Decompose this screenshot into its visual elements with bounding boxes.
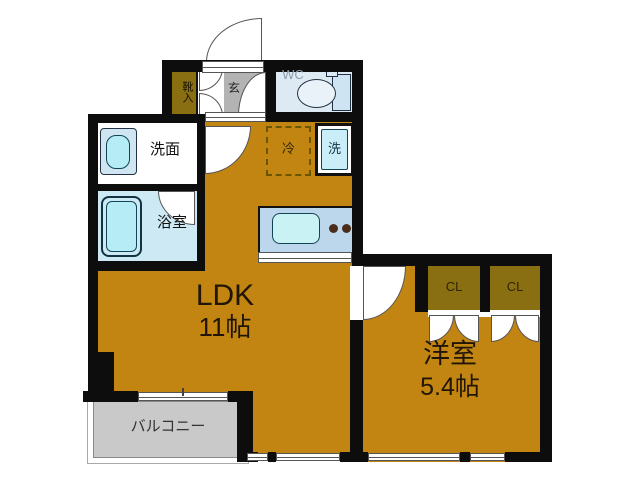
bathroom-label: 浴室 [146,215,198,231]
front-door-arc [206,18,262,62]
bedroom-label: 洋室 [380,340,520,368]
wall [197,114,205,268]
wall [88,114,98,268]
wall [98,184,197,191]
wc-label: WC [278,68,308,82]
wall [352,254,552,266]
washbasin-bowl-icon [106,135,130,169]
bedroom-door-gap [350,266,364,320]
wall [162,60,172,122]
bedroom-window-1 [368,453,460,461]
wall [460,452,470,462]
wall [350,320,363,462]
burner-icon-2 [342,224,351,233]
counter-front-edge [258,252,352,263]
wall [266,112,362,122]
closet-left-label: CL [428,280,480,294]
wall [540,254,552,462]
washroom-label: 洗面 [138,142,192,158]
front-door-leaf [202,61,264,73]
bedroom-size-label: 5.4帖 [380,374,520,400]
ldk-size-label: 11帖 [150,314,300,341]
washing-machine-label: 洗 [315,142,354,156]
balcony-label: バルコニー [108,419,228,435]
entrance-label: 玄 [226,82,242,95]
floor-plan: LDK 11帖 洋室 5.4帖 バルコニー 洗面 浴室 WC 玄 靴入 CL C… [0,0,640,480]
wall [88,261,98,356]
wall [480,266,490,312]
bathtub-inner-icon [106,201,137,252]
wall [83,391,138,402]
ldk-window-2 [276,453,340,461]
wall [415,266,428,312]
toilet-bowl-icon [297,79,336,108]
entrance-threshold [205,112,266,122]
closet-right-label: CL [490,280,540,294]
ldk-window-1 [247,453,268,461]
wall [352,60,363,266]
shoe-cabinet-label: 靴入 [172,72,192,112]
kitchen-sink-icon [272,213,320,244]
wall [88,261,205,271]
refrigerator-label: 冷 [266,142,311,156]
ldk-label: LDK [150,280,300,312]
burner-icon-1 [329,224,338,233]
wall [352,452,368,462]
wall [268,452,276,462]
wall [505,452,552,462]
wall [88,114,205,123]
bedroom-window-2 [470,453,505,461]
window-tick [182,388,184,396]
